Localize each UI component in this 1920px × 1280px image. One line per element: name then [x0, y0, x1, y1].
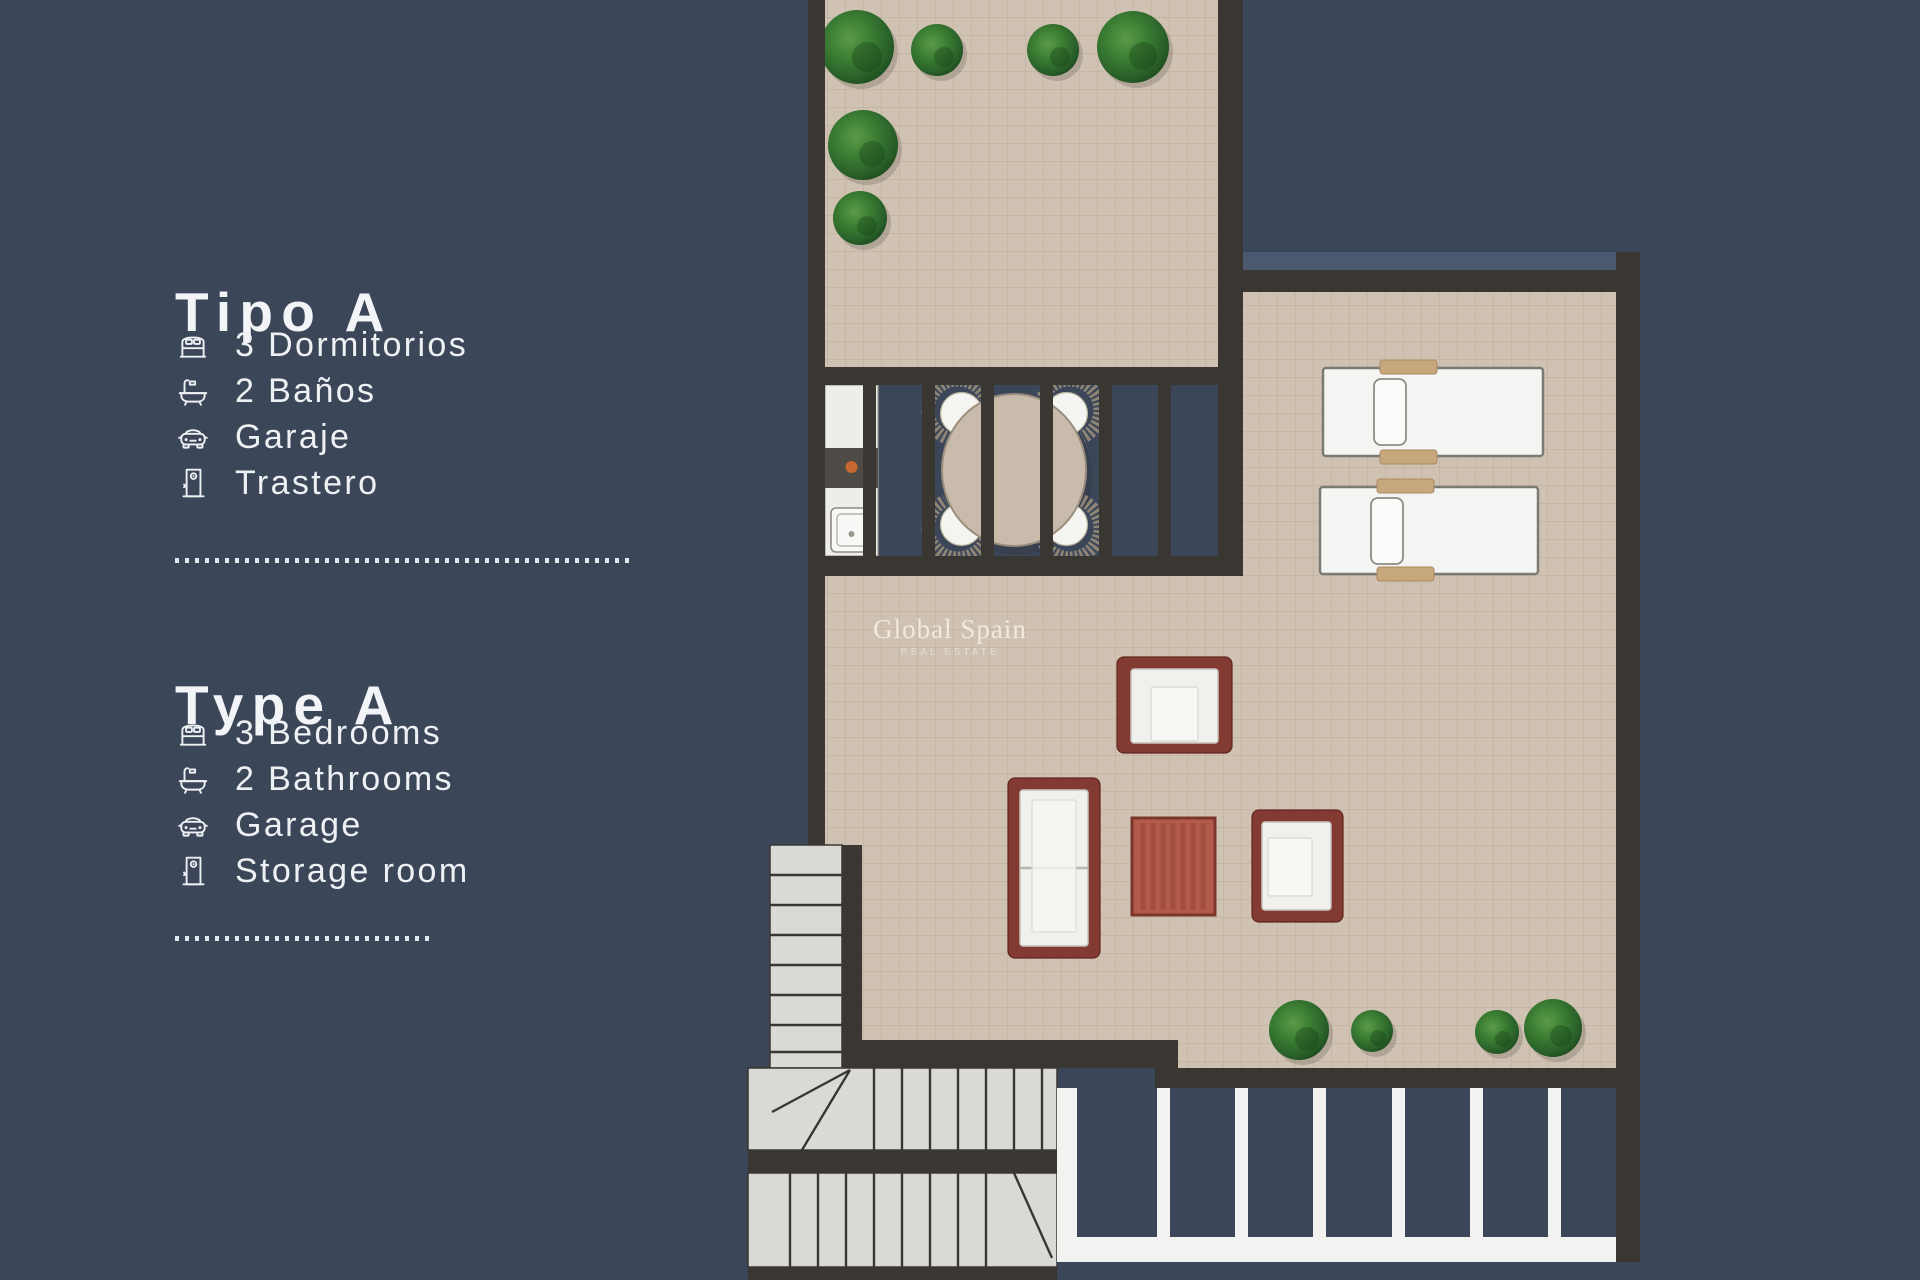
feature-label: 2 Baños [235, 372, 376, 411]
sofa [1008, 778, 1100, 958]
feature-label: 3 Dormitorios [235, 326, 468, 365]
bath-icon [175, 761, 215, 797]
light-band [1243, 252, 1640, 270]
armchair [1117, 657, 1232, 753]
bed-icon [175, 327, 215, 363]
bath-icon [175, 373, 215, 409]
dotted-divider [175, 936, 433, 941]
feature-list-en: 3 Bedrooms 2 Bathrooms Garage Storage ro… [175, 710, 470, 894]
armchair [1252, 810, 1343, 922]
feature-label: Storage room [235, 852, 470, 891]
sun-lounger [1323, 360, 1543, 464]
car-icon [175, 807, 215, 843]
feature-storage-en: Storage room [175, 848, 470, 894]
stove-knob [846, 461, 858, 473]
feature-bedrooms-es: 3 Dormitorios [175, 322, 468, 368]
coffee-table [1132, 818, 1215, 915]
door-icon [175, 465, 215, 501]
feature-garage-es: Garaje [175, 414, 468, 460]
feature-label: 2 Bathrooms [235, 760, 454, 799]
dining-table [916, 368, 1113, 571]
carport-grid [1057, 1088, 1616, 1262]
car-icon [175, 419, 215, 455]
feature-list-es: 3 Dormitorios 2 Baños Garaje Trastero [175, 322, 468, 506]
feature-bathrooms-en: 2 Bathrooms [175, 756, 470, 802]
feature-label: Garaje [235, 418, 351, 457]
feature-bathrooms-es: 2 Baños [175, 368, 468, 414]
feature-label: 3 Bedrooms [235, 714, 442, 753]
feature-label: Trastero [235, 464, 379, 503]
bed-icon [175, 715, 215, 751]
feature-storage-es: Trastero [175, 460, 468, 506]
brochure-page: Global Spain REAL ESTATE Tipo A 3 Dormit… [0, 0, 1920, 1280]
dotted-divider [175, 558, 635, 563]
sun-lounger [1320, 479, 1538, 581]
feature-bedrooms-en: 3 Bedrooms [175, 710, 470, 756]
feature-label: Garage [235, 806, 363, 845]
door-icon [175, 853, 215, 889]
feature-garage-en: Garage [175, 802, 470, 848]
floor-plan [0, 0, 1920, 1280]
